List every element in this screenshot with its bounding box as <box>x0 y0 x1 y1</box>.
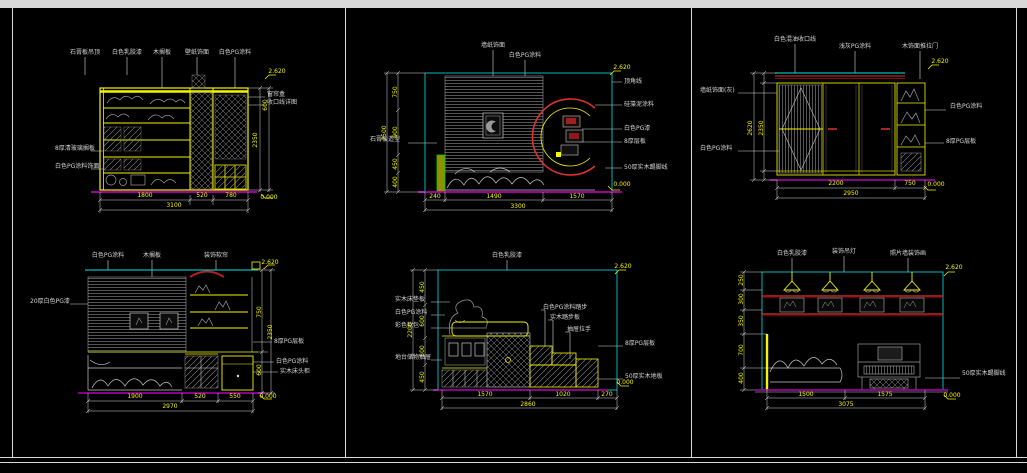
annotation-label: 实木踏步板 <box>550 315 580 321</box>
dimension-text: 3075 <box>838 402 853 408</box>
annotation-label: 装饰吊灯 <box>832 249 856 255</box>
annotation-label: 20厚白色PG漆 <box>30 299 70 305</box>
drawing-elevation-bed-headboard-moon: 墙纸饰面白色PG涂料石膏板造型顶角线硅藻泥涂料白色PG漆8厚层板50厚实木踢脚线… <box>370 40 670 225</box>
level-mark-text: 0.000 <box>260 195 277 201</box>
annotation-label: 抽屉拉手 <box>567 327 591 333</box>
dimension-text: 2200 <box>408 322 414 337</box>
annotation-label: 木搁板 <box>143 253 161 259</box>
dimension-text: 520 <box>194 394 205 400</box>
dimension-text: 700 <box>739 344 745 355</box>
dimension-text: 2350 <box>268 324 274 339</box>
annotation-label: 装饰软帘 <box>204 253 228 259</box>
annotation-label: 墙纸饰面(灰) <box>700 88 735 94</box>
dimension-text: 750 <box>393 86 399 97</box>
annotation-label: 50厚实木踢脚线 <box>624 165 668 171</box>
dimension-text: 780 <box>225 193 236 199</box>
annotation-label: 白色PG涂料 <box>92 253 124 259</box>
annotation-label: 墙纸饰面 <box>481 43 505 49</box>
annotation-label: 白色乳胶漆 <box>112 50 142 56</box>
level-mark-text: 0.000 <box>927 182 944 188</box>
level-mark-text: 0.000 <box>259 394 276 400</box>
level-mark-text: 2.620 <box>613 65 630 71</box>
annotation-label: 收口线详图 <box>267 100 297 106</box>
annotation-label: 白色PG涂料踏步 <box>543 305 587 311</box>
dimension-text: 1020 <box>555 392 570 398</box>
dimension-text: 2620 <box>748 120 754 135</box>
dimension-text: 1800 <box>137 193 152 199</box>
annotation-label: 白色乳胶漆 <box>777 251 807 257</box>
annotation-label: 白色PG涂料 <box>276 359 308 365</box>
dimension-text: 450 <box>420 371 426 382</box>
dimension-text: 450 <box>420 281 426 292</box>
annotation-label: 浅灰PG涂料 <box>839 44 871 50</box>
frame-left-line <box>12 8 13 458</box>
dimension-text: 270 <box>601 392 612 398</box>
annotation-label: 8厚清玻璃搁板 <box>55 146 95 152</box>
frame-top-strip <box>0 0 1027 8</box>
annotation-label: 50厚实木踢脚线 <box>962 371 1006 377</box>
dimension-text: 250 <box>739 274 745 285</box>
dimension-text: 500 <box>420 345 426 356</box>
annotation-label: 木饰面推拉门 <box>902 44 938 50</box>
annotation-label: 8厚PG层板 <box>625 341 655 347</box>
level-mark-text: 2.620 <box>614 264 631 270</box>
annotation-label: 白色PG涂料饰面 <box>55 164 99 170</box>
drawing-elevation-piano-wall: 白色乳胶漆装饰吊灯照片墙装饰画50厚实木踢脚线25030035070040015… <box>730 250 1027 430</box>
annotation-label: 白色混油收口线 <box>774 37 816 43</box>
dimension-text: 600 <box>263 99 269 110</box>
drawing-elevation-wardrobe: 白色混油收口线浅灰PG涂料木饰面推拉门墙纸饰面(灰)白色PG涂料白色PG涂料8厚… <box>700 35 1010 225</box>
dimension-text: 240 <box>429 194 440 200</box>
upright-piano-icon <box>858 344 920 390</box>
dimension-text: 400 <box>393 176 399 187</box>
annotation-label: 实木床垫板 <box>395 297 425 303</box>
level-mark-text: 2.620 <box>945 265 962 271</box>
level-mark-text: 0.000 <box>616 380 633 386</box>
level-mark-text: 2.620 <box>261 260 278 266</box>
level-mark-text: 0.000 <box>943 393 960 399</box>
annotation-label: 8厚PG层板 <box>946 139 976 145</box>
annotation-label: 顶角线 <box>624 79 642 85</box>
dimension-text: 520 <box>196 193 207 199</box>
annotation-label: 白色PG涂料 <box>219 50 251 56</box>
frame-bottom-line-1 <box>0 457 1027 458</box>
drawing-elevation-bed-wall-frames: 白色PG涂料木搁板装饰软帘20厚白色PG漆8厚PG层板白色PG涂料实木床头柜75… <box>30 250 340 430</box>
dimension-text: 1490 <box>486 194 501 200</box>
dimension-text: 300 <box>739 293 745 304</box>
annotation-label: 壁纸饰面 <box>185 50 209 56</box>
annotation-label: 石膏板吊顶 <box>70 50 100 56</box>
annotation-label: 木搁板 <box>153 50 171 56</box>
drawing-elevation-bookshelf-wall: 石膏板吊顶白色乳胶漆木搁板壁纸饰面白色PG涂料8厚清玻璃搁板白色PG涂料饰面窗帘… <box>55 45 310 220</box>
dimension-text: 2860 <box>520 402 535 408</box>
dimension-text: 1575 <box>877 392 892 398</box>
annotation-label: 硅藻泥涂料 <box>624 102 654 108</box>
annotation-label: 8厚层板 <box>624 139 646 145</box>
annotation-label: 白色PG涂料 <box>700 146 732 152</box>
dimension-text: 2350 <box>759 120 765 135</box>
elevation-tatami-step-bed-linework <box>395 250 730 430</box>
level-mark-text: 2.620 <box>268 69 285 75</box>
annotation-label: 窗帘盒 <box>267 92 285 98</box>
dimension-text: 3100 <box>166 203 181 209</box>
dimension-text: 1500 <box>798 392 813 398</box>
dimension-text: 400 <box>739 372 745 383</box>
dimension-text: 900 <box>393 126 399 137</box>
dimension-text: 2350 <box>253 132 259 147</box>
dimension-text: 2500 <box>382 125 388 140</box>
picture-frame-icons <box>780 298 924 312</box>
cad-canvas: 石膏板吊顶白色乳胶漆木搁板壁纸饰面白色PG涂料8厚清玻璃搁板白色PG涂料饰面窗帘… <box>0 0 1027 473</box>
annotation-label: 照片墙装饰画 <box>890 251 926 257</box>
annotation-label: 白色PG漆 <box>624 126 650 132</box>
dimension-text: 2970 <box>162 404 177 410</box>
dimension-text: 600 <box>257 364 263 375</box>
frame-bottom-line-2 <box>0 462 1027 463</box>
dimension-text: 3300 <box>510 204 525 210</box>
annotation-label: 白色PG涂料 <box>509 53 541 59</box>
dimension-text: 1570 <box>477 392 492 398</box>
pendant-lamp-icons <box>784 272 920 292</box>
drawing-elevation-tatami-step-bed: 白色乳胶漆实木床垫板白色PG涂料彩色软包地台储物抽屉白色PG涂料踏步实木踏步板抽… <box>395 250 730 430</box>
level-mark-text: 0.000 <box>613 182 630 188</box>
elevation-piano-wall-linework <box>730 250 1027 430</box>
dimension-text: 2950 <box>843 191 858 197</box>
dimension-text: 2200 <box>828 181 843 187</box>
dimension-text: 750 <box>257 306 263 317</box>
viewport-divider-1 <box>345 8 346 458</box>
dimension-text: 550 <box>229 394 240 400</box>
annotation-label: 白色PG涂料 <box>950 104 982 110</box>
dimension-text: 1570 <box>569 194 584 200</box>
level-mark-text: 2.620 <box>931 59 948 65</box>
dimension-text: 600 <box>420 315 426 326</box>
annotation-label: 白色乳胶漆 <box>492 253 522 259</box>
dimension-text: 350 <box>739 315 745 326</box>
dimension-text: 450 <box>393 158 399 169</box>
annotation-label: 实木床头柜 <box>280 369 310 375</box>
dimension-text: 1900 <box>127 394 142 400</box>
annotation-label: 8厚PG层板 <box>274 339 304 345</box>
dimension-text: 750 <box>904 181 915 187</box>
